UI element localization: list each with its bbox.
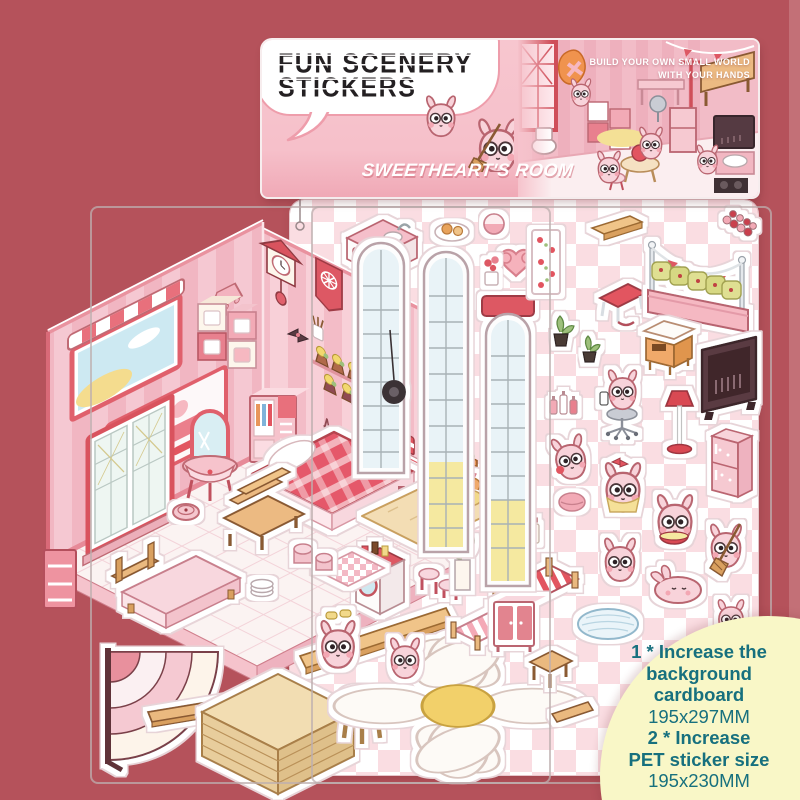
red-desk [600, 284, 646, 325]
package-header: FUN SCENERY STICKERS [262, 40, 758, 197]
info-line-5: PET sticker size [596, 749, 800, 771]
drawer-chest [44, 550, 76, 608]
info-bubble-text: 1 * Increase the background cardboard 19… [596, 641, 800, 792]
info-line-3: cardboard [596, 684, 800, 706]
macaron [484, 214, 504, 234]
product-title-line2: STICKERS [278, 74, 498, 101]
plant-pot-sprout [554, 316, 574, 346]
arched-window-b [424, 252, 468, 552]
rug-bunny [391, 638, 419, 678]
office-chair-bunny [600, 370, 638, 440]
tv [702, 337, 756, 420]
bead-garland [723, 211, 756, 236]
info-size-1: 195x297MM [596, 706, 800, 728]
bowl-bunny [658, 495, 692, 544]
winking-bunny [551, 434, 589, 482]
fridge [712, 429, 752, 497]
flower-panel [532, 230, 560, 294]
plate-stack [251, 580, 273, 597]
bunny-mascot-icon [422, 92, 460, 139]
bow-bunny [606, 458, 640, 512]
tagline-line2: WITH YOUR HANDS [589, 69, 750, 82]
nightstand [644, 321, 694, 375]
info-line-4: 2 * Increase [596, 727, 800, 749]
title-speech-bubble: FUN SCENERY STICKERS [262, 40, 500, 116]
broom-bunny [710, 524, 741, 576]
plant-pot-small [583, 336, 600, 362]
macaron-bun [559, 493, 585, 511]
speech-bubble-tail-icon [284, 112, 330, 142]
info-line-2: background [596, 663, 800, 685]
oval-rug [578, 609, 638, 639]
wood-shelf [592, 216, 642, 240]
standing-bunny [605, 538, 635, 581]
series-label: SWEETHEART'S ROOM [361, 160, 551, 181]
package-tagline: BUILD YOUR OWN SMALL WORLD WITH YOUR HAN… [589, 56, 750, 82]
product-image: FUN SCENERY STICKERS [0, 0, 800, 800]
lying-bunny [651, 566, 701, 603]
small-table [530, 651, 572, 688]
flower-vase [484, 256, 499, 285]
room-scene [44, 192, 477, 682]
robot-vacuum [173, 504, 199, 520]
info-line-1: 1 * Increase the [596, 641, 800, 663]
tagline-line1: BUILD YOUR OWN SMALL WORLD [589, 56, 750, 69]
arched-window-c [482, 296, 534, 586]
info-size-2: 195x230MM [596, 770, 800, 792]
wood-platform [202, 674, 354, 794]
vanity-mirror [183, 411, 237, 501]
heart-cloud [501, 250, 532, 276]
cabinet [494, 596, 546, 652]
floor-lamp [666, 391, 693, 454]
arched-window-a [358, 243, 406, 473]
cosmetic-bottles [550, 391, 577, 414]
flower-box-bunting [648, 242, 748, 333]
food-plate [435, 223, 469, 241]
